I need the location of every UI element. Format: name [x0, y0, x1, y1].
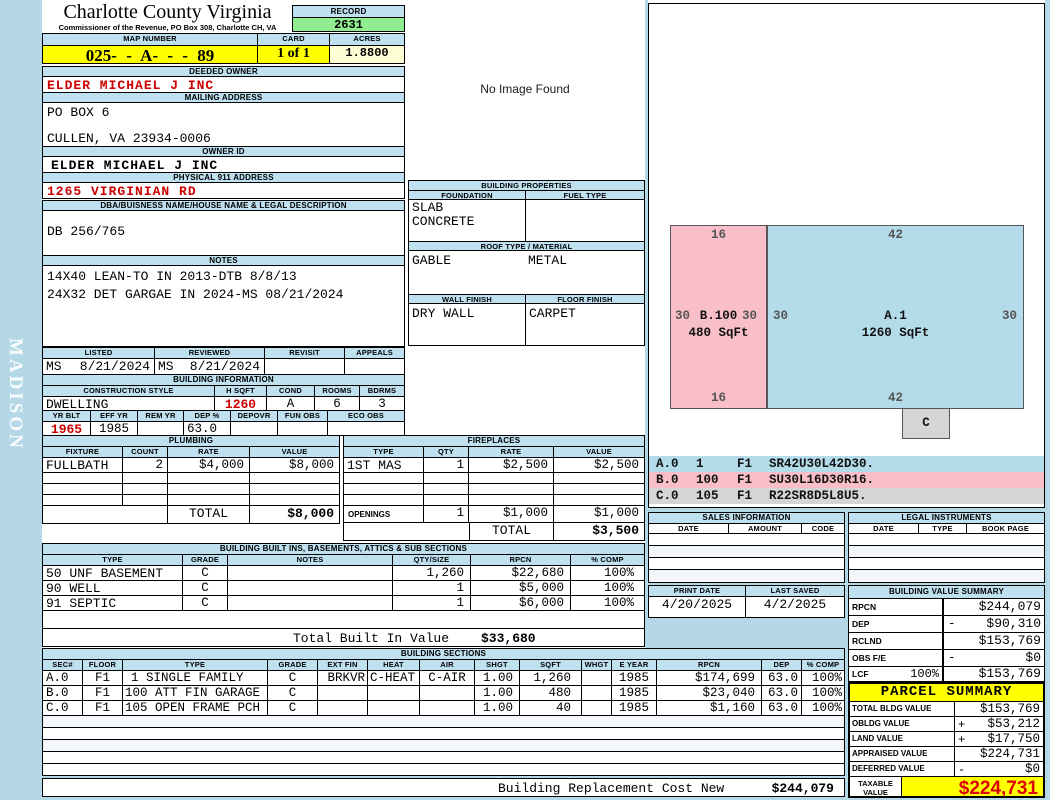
parcel-row: APPRAISED VALUE $224,731	[850, 747, 1043, 762]
parcel-summary-panel: PARCEL SUMMARY TOTAL BLDG VALUE $153,769…	[848, 682, 1045, 798]
sales-information-title: SALES INFORMATION	[649, 513, 844, 524]
summary-row: LCF 100% $153,769	[849, 667, 1044, 682]
fireplaces-title: FIREPLACES	[344, 436, 644, 447]
reviewed-date: 8/21/2024	[190, 359, 260, 374]
summary-row: RPCN $244,079	[849, 599, 1044, 616]
acres-label: ACRES	[330, 34, 404, 45]
builtins-title: BUILDING BUILT INS, BASEMENTS, ATTICS & …	[43, 544, 644, 555]
sketch-legend-row-b: B.0 100 F1 SU30L16D30R16.	[649, 472, 1044, 488]
building-information-panel: BUILDING INFORMATION CONSTRUCTION STYLE …	[42, 374, 405, 436]
legal-description-value: DB 256/765	[47, 224, 125, 239]
condition-value: A	[267, 397, 315, 410]
floor-finish-value: CARPET	[526, 304, 644, 346]
parcel-summary-title: PARCEL SUMMARY	[850, 684, 1043, 702]
replacement-cost-label: Building Replacement Cost New	[498, 781, 724, 796]
legal-instruments-panel: LEGAL INSTRUMENTS DATE TYPE BOOK PAGE	[848, 512, 1045, 583]
mailing-address-box: PO BOX 6 CULLEN, VA 23934-0006	[42, 102, 405, 147]
parcel-row: DEFERRED VALUE - $0	[850, 762, 1043, 777]
building-sections-panel: BUILDING SECTIONS SEC# FLOOR TYPE GRADE …	[42, 648, 845, 776]
parcel-row: OBLDG VALUE + $53,212	[850, 717, 1043, 732]
sketch-b-area: 480 SqFt	[670, 326, 767, 340]
section-row: C.0 F1 105 OPEN FRAME PCH C 1.00 40 1985…	[43, 701, 844, 716]
card-label: CARD	[258, 34, 330, 45]
dim-b-bottom: 16	[670, 391, 767, 405]
county-header: Charlotte County Virginia Commissioner o…	[42, 2, 293, 32]
floor-finish-label: FLOOR FINISH	[526, 295, 644, 303]
wall-finish-value: DRY WALL	[409, 304, 526, 346]
print-date-label: PRINT DATE	[649, 586, 746, 596]
plumbing-value: $8,000	[250, 458, 339, 472]
year-built-value: 1965	[43, 422, 91, 436]
summary-row: OBS F/E - $0	[849, 650, 1044, 667]
appeals-value	[345, 359, 404, 374]
notes-box: 14X40 LEAN-TO IN 2013-DTB 8/8/13 24X32 D…	[42, 265, 405, 347]
summary-row: RCLND $153,769	[849, 633, 1044, 650]
taxable-value: $224,731	[902, 777, 1043, 798]
building-value-summary-title: BUILDING VALUE SUMMARY	[849, 586, 1044, 599]
legal-description-box: DB 256/765	[42, 210, 405, 256]
record-box: RECORD 2631	[292, 5, 405, 32]
openings-rate: $1,000	[469, 506, 554, 522]
sketch-legend-row-a: A.0 1 F1 SR42U30L42D30.	[649, 456, 1044, 472]
last-saved-label: LAST SAVED	[746, 586, 844, 596]
fireplace-type: 1ST MAS	[344, 458, 424, 472]
section-row: B.0 F1 100 ATT FIN GARAGE C 1.00 480 198…	[43, 686, 844, 701]
fireplaces-total-value: $3,500	[554, 523, 644, 541]
listed-date: 8/21/2024	[80, 359, 150, 374]
dim-a-top: 42	[767, 228, 1024, 242]
appeals-label: APPEALS	[345, 348, 404, 358]
rooms-value: 6	[315, 397, 360, 410]
sketch-panel: 16 16 30 30 B.100 480 SqFt 42 42 30 30 A…	[648, 3, 1045, 508]
openings-label: OPENINGS	[344, 506, 424, 522]
building-properties-panel: BUILDING PROPERTIES FOUNDATION FUEL TYPE…	[408, 180, 645, 346]
listed-by: MS	[46, 359, 62, 374]
notes-line1: 14X40 LEAN-TO IN 2013-DTB 8/8/13	[47, 269, 297, 284]
sales-information-panel: SALES INFORMATION DATE AMOUNT CODE	[648, 512, 845, 583]
sidebar-watermark: MADISON	[4, 338, 26, 451]
builtin-row: 50 UNF BASEMENT C 1,260 $22,680 100%	[43, 566, 644, 581]
owner-id-value: ELDER MICHAEL J INC	[42, 156, 405, 173]
fireplace-rate: $2,500	[469, 458, 554, 472]
reviewed-by: MS	[158, 359, 174, 374]
county-title: Charlotte County Virginia	[42, 2, 293, 23]
roof-type-value: GABLE	[412, 253, 451, 268]
builtin-row: 91 SEPTIC C 1 $6,000 100%	[43, 596, 644, 611]
fireplace-value: $2,500	[554, 458, 644, 472]
depovr-value	[231, 422, 278, 436]
acres-value: 1.8800	[330, 46, 404, 63]
building-sections-title: BUILDING SECTIONS	[43, 649, 844, 660]
plumbing-fixture: FULLBATH	[43, 458, 123, 472]
building-value-summary-panel: BUILDING VALUE SUMMARY RPCN $244,079 DEP…	[848, 585, 1045, 682]
openings-qty: 1	[424, 506, 469, 522]
visits-table: LISTED REVIEWED REVISIT APPEALS MS 8/21/…	[42, 347, 405, 375]
parcel-row: TOTAL BLDG VALUE $153,769	[850, 702, 1043, 717]
fuel-type-label: FUEL TYPE	[526, 191, 644, 199]
physical-address-value: 1265 VIRGINIAN RD	[42, 182, 405, 199]
map-number-label: MAP NUMBER	[43, 34, 258, 45]
map-card-acres-table: MAP NUMBER CARD ACRES 025- - A- - - 89 1…	[42, 33, 405, 64]
summary-row: DEP - $90,310	[849, 616, 1044, 633]
map-number-value: 025- - A- - - 89	[43, 46, 258, 63]
roof-label: ROOF TYPE / MATERIAL	[409, 242, 644, 250]
last-saved-value: 4/2/2025	[746, 597, 844, 617]
plumbing-total-label: TOTAL	[168, 506, 250, 524]
dim-a-bottom: 42	[767, 391, 1024, 405]
foundation-label: FOUNDATION	[409, 191, 526, 199]
openings-value: $1,000	[554, 506, 644, 522]
print-saved-panel: PRINT DATE LAST SAVED 4/20/2025 4/2/2025	[648, 585, 845, 618]
effective-year-value: 1985	[91, 422, 138, 436]
plumbing-count: 2	[123, 458, 168, 472]
foundation-value-2: CONCRETE	[409, 215, 525, 229]
builtins-panel: BUILDING BUILT INS, BASEMENTS, ATTICS & …	[42, 543, 645, 647]
building-information-title: BUILDING INFORMATION	[43, 375, 404, 386]
record-value: 2631	[293, 18, 404, 32]
plumbing-rate: $4,000	[168, 458, 250, 472]
reviewed-label: REVIEWED	[155, 348, 265, 358]
bedrooms-value: 3	[360, 397, 404, 410]
record-label: RECORD	[293, 6, 404, 18]
eco-obs-value	[328, 422, 404, 436]
building-properties-title: BUILDING PROPERTIES	[409, 181, 644, 191]
construction-style-value: DWELLING	[43, 397, 215, 410]
fun-obs-value	[278, 422, 328, 436]
depreciation-pct-value: 63.0	[184, 422, 231, 436]
mailing-line1: PO BOX 6	[47, 105, 109, 120]
fireplace-qty: 1	[424, 458, 469, 472]
roof-material-value: METAL	[528, 253, 567, 268]
replacement-cost-value: $244,079	[772, 781, 834, 796]
revisit-value	[265, 359, 345, 374]
fireplaces-total-label: TOTAL	[469, 523, 554, 541]
fireplaces-panel: FIREPLACES TYPE QTY RATE VALUE 1ST MAS 1…	[343, 435, 645, 541]
no-image-placeholder: No Image Found	[405, 82, 645, 96]
deeded-owner-value: ELDER MICHAEL J INC	[42, 76, 405, 93]
builtins-total-value: $33,680	[481, 631, 536, 646]
builtin-row: 90 WELL C 1 $5,000 100%	[43, 581, 644, 596]
plumbing-total-value: $8,000	[250, 506, 339, 524]
sketch-legend-row-c: C.0 105 F1 R22SR8D5L8U5.	[649, 488, 1044, 504]
sketch-a-name: A.1	[767, 309, 1024, 323]
fuel-type-value	[526, 200, 644, 241]
listed-label: LISTED	[43, 348, 155, 358]
taxable-value-row: TAXABLE VALUE $224,731	[850, 777, 1043, 798]
plumbing-panel: PLUMBING FIXTURE COUNT RATE VALUE FULLBA…	[42, 435, 340, 524]
legal-instruments-title: LEGAL INSTRUMENTS	[849, 513, 1044, 524]
mailing-line2: CULLEN, VA 23934-0006	[47, 131, 211, 146]
sketch-c-name: C	[902, 416, 950, 430]
builtins-total-label: Total Built In Value	[293, 631, 449, 646]
sketch-b-name: B.100	[670, 309, 767, 323]
notes-line2: 24X32 DET GARGAE IN 2024-MS 08/21/2024	[47, 287, 343, 302]
revisit-label: REVISIT	[265, 348, 345, 358]
card-value: 1 of 1	[258, 46, 330, 63]
sketch-a-area: 1260 SqFt	[767, 326, 1024, 340]
parcel-row: LAND VALUE + $17,750	[850, 732, 1043, 747]
replacement-cost-footer: Building Replacement Cost New $244,079	[42, 778, 845, 797]
print-date-value: 4/20/2025	[649, 597, 746, 617]
county-subtitle: Commissioner of the Revenue, PO Box 308,…	[42, 23, 293, 32]
wall-finish-label: WALL FINISH	[409, 295, 526, 303]
plumbing-title: PLUMBING	[43, 436, 339, 447]
remodel-year-value	[138, 422, 184, 436]
heated-sqft-value: 1260	[215, 397, 267, 410]
property-record-card: MADISON Charlotte County Virginia Commis…	[0, 0, 1050, 800]
section-row: A.0 F1 1 SINGLE FAMILY C BRKVR C-HEAT C-…	[43, 671, 844, 686]
foundation-value-1: SLAB	[409, 200, 525, 215]
dim-b-top: 16	[670, 228, 767, 242]
